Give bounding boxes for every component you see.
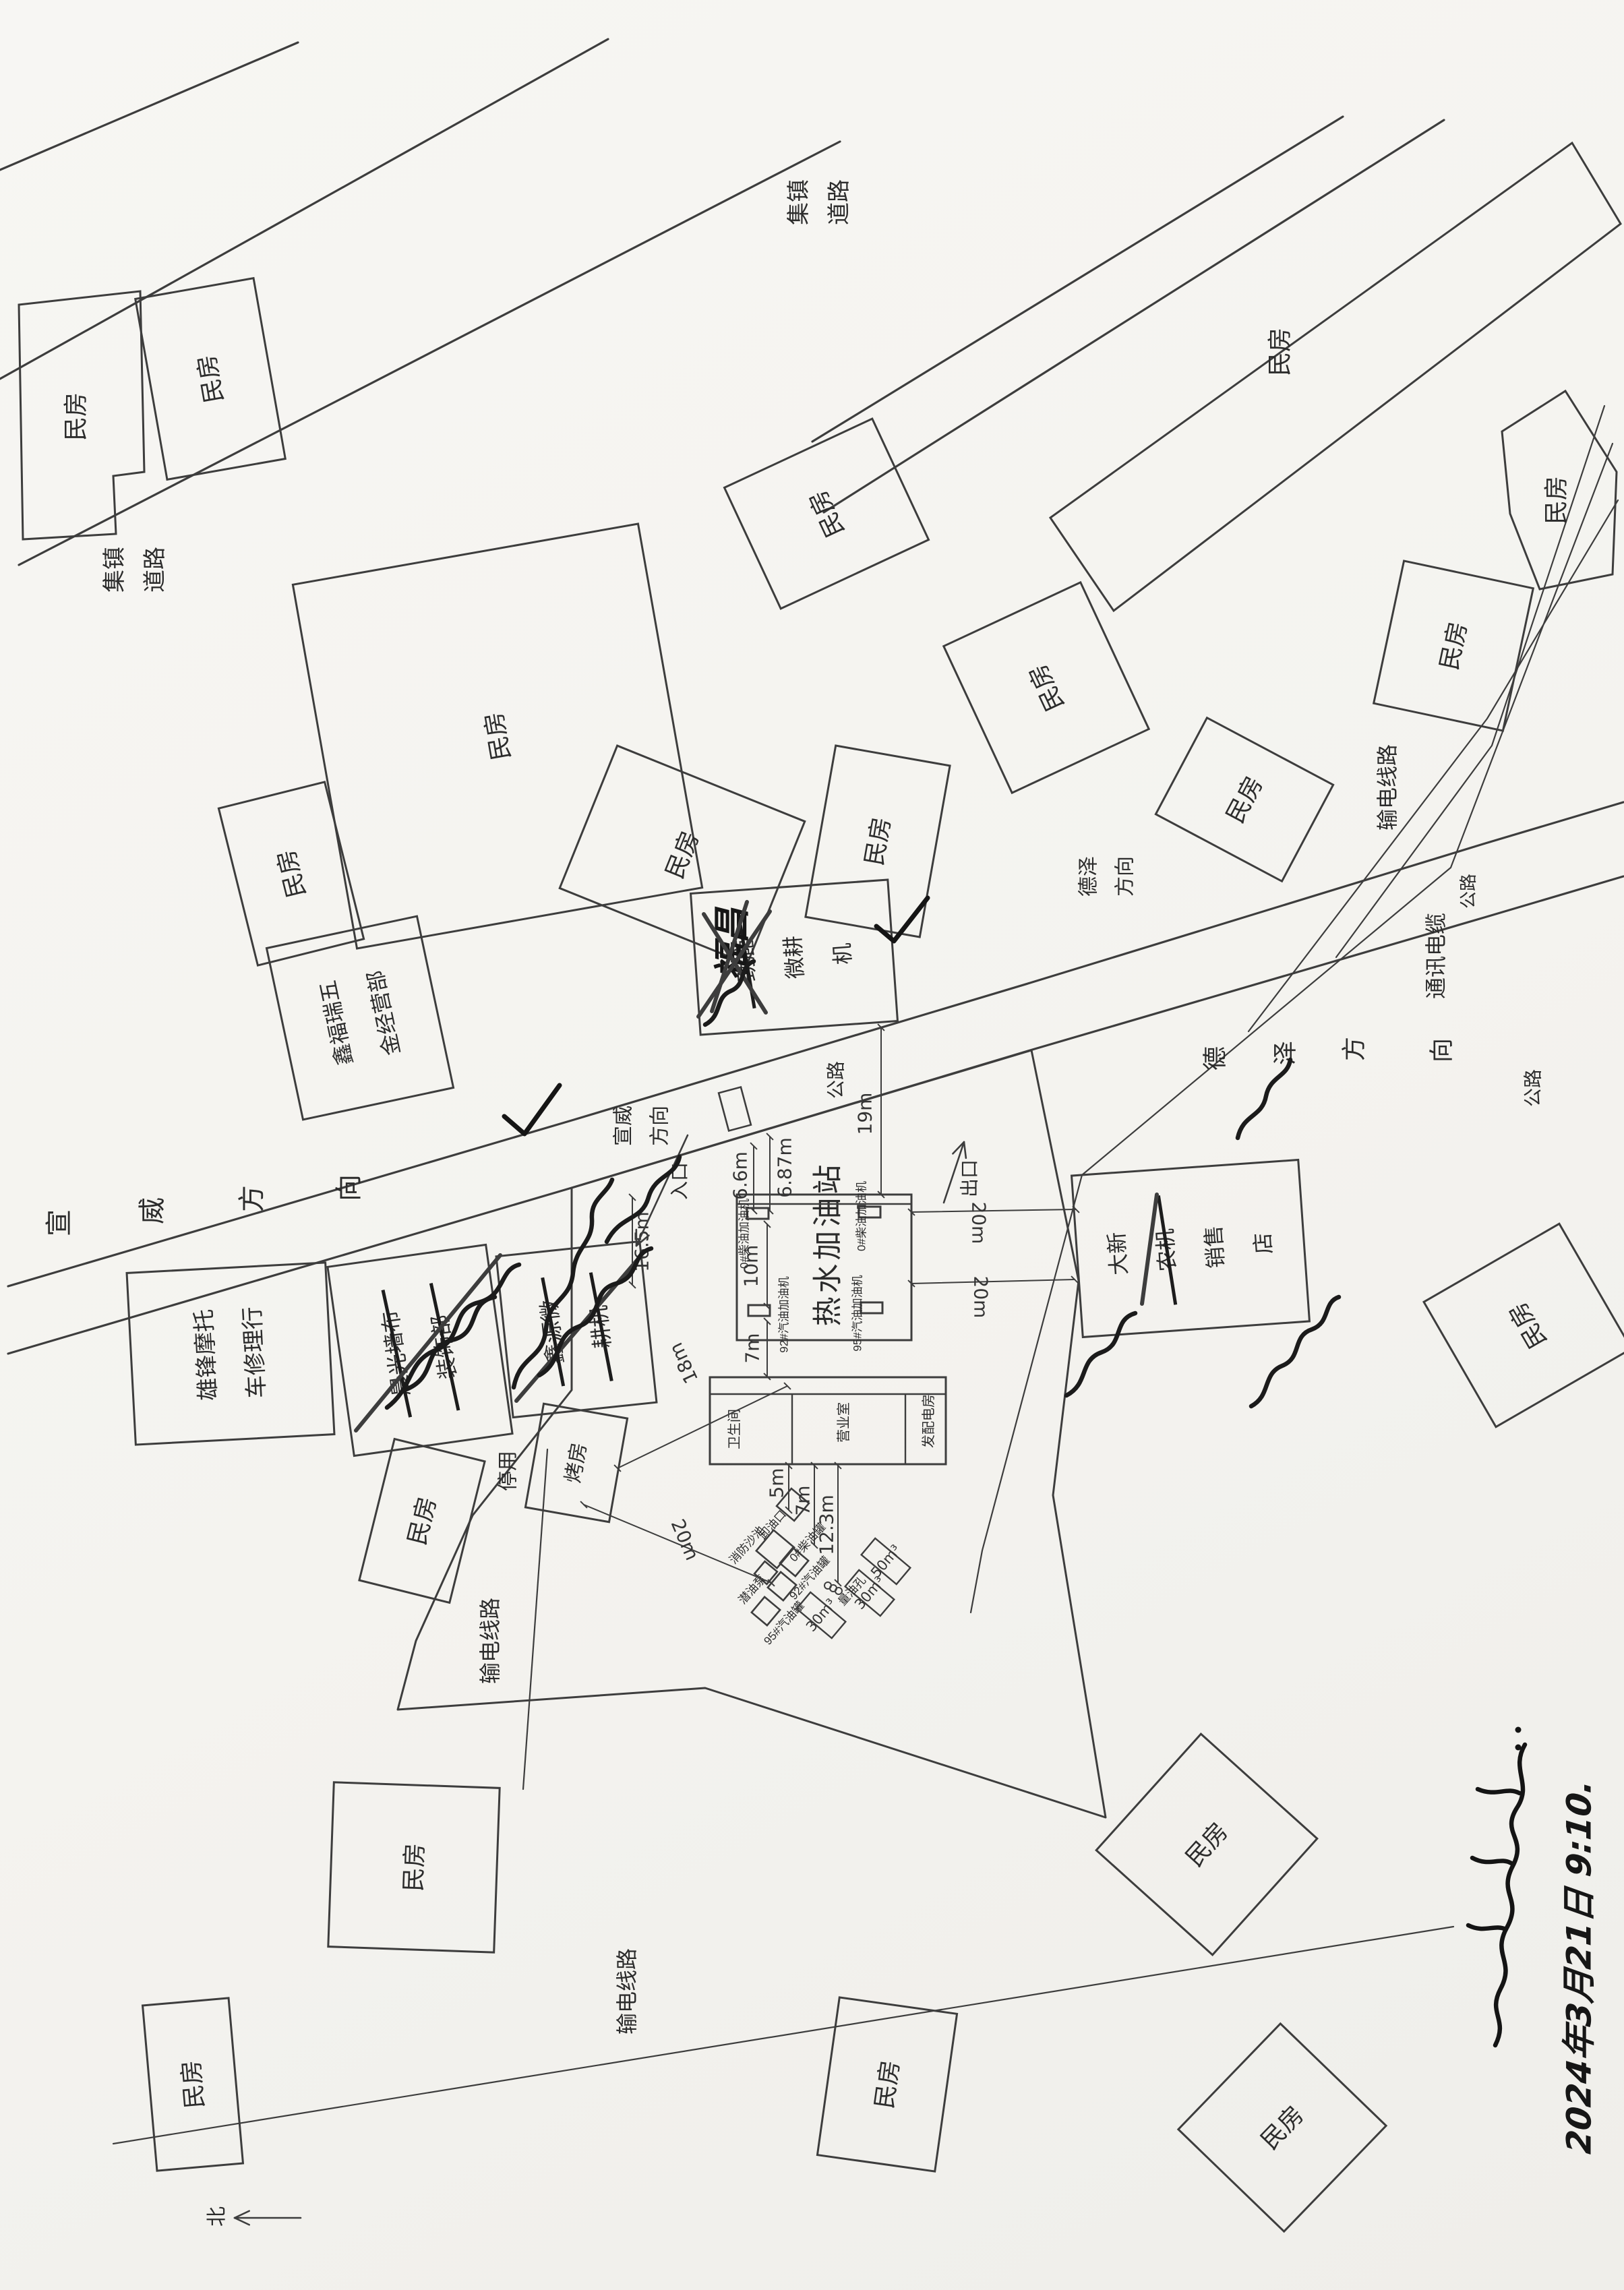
dimension-label: 10m (740, 1245, 762, 1288)
road-line (812, 117, 1343, 442)
house-box: 民房 (143, 1998, 243, 2171)
house-box: 民房 (806, 746, 950, 937)
house: 民房 (218, 782, 363, 965)
xuanwei-direction-small-line: 宣威 (613, 1106, 635, 1146)
house: 民房 (19, 291, 144, 539)
dimension-tick (784, 1383, 791, 1389)
deze-dir-char-3: 方 (1340, 1037, 1368, 1061)
signature-dot (1515, 1745, 1522, 1751)
fuel-dispenser-label: 92#汽油加油机 (778, 1276, 791, 1352)
shop-label-column: 大新 (1104, 1231, 1131, 1275)
house-box: 民房 (1178, 2024, 1386, 2231)
deze-dir-char-4: 向 (1428, 1038, 1455, 1062)
house: 民房 (806, 746, 950, 937)
house-label: 民房 (177, 2059, 208, 2109)
road-line (0, 42, 298, 170)
deze-dir-char-2: 泽 (1271, 1041, 1299, 1065)
dimension-label: 6.87m (774, 1137, 796, 1198)
shop-outline (266, 916, 453, 1120)
house-box: 民房 (944, 582, 1149, 793)
house-label: 民房 (1023, 660, 1069, 716)
power-line-label-3: 输电线路 (615, 1948, 639, 2035)
shop-outline (127, 1263, 334, 1445)
house: 民房 (817, 1997, 957, 2171)
scanned-site-plan-page: 热水加油站 2024年3月21日 9:10. 民房民房民房民房民房民房民房民房民… (0, 0, 1624, 2290)
dimension-line (618, 1386, 787, 1468)
house: 民房 (1374, 561, 1534, 731)
house-box: 民房 (293, 524, 702, 948)
hand-drawn-site-plan: 热水加油站 2024年3月21日 9:10. 民房民房民房民房民房民房民房民房民… (0, 0, 1624, 2290)
xuanwei-dir-char-2: 威 (138, 1197, 167, 1224)
xiongfeng-motorcycle-repair: 雄锋摩托车修理行 (127, 1263, 334, 1445)
town-road-label-2-line: 道路 (826, 179, 852, 225)
north-arrow-head (235, 2211, 249, 2218)
house-label: 民房 (860, 815, 896, 868)
house-label: 民房 (1435, 620, 1472, 673)
shop-label-column: 机 (830, 942, 855, 965)
house-box: 民房 (218, 782, 363, 965)
tank-outline (752, 1597, 780, 1625)
town-road-label-1-line: 道路 (142, 547, 168, 593)
house: 民房 (1424, 1224, 1624, 1426)
utility-line (113, 1927, 1453, 2144)
highway-label-1: 公路 (826, 1061, 847, 1099)
disused-label: 停用 (498, 1451, 520, 1491)
station-name: 热水加油站 (812, 1162, 845, 1327)
house-label: 民房 (1503, 1298, 1552, 1354)
house-label: 民房 (804, 486, 849, 542)
shop-label-column: 车修理行 (239, 1306, 270, 1399)
house-box: 民房 (328, 1782, 500, 1952)
fuel-dispenser (861, 1302, 882, 1313)
dimension-label: 7m (742, 1333, 764, 1363)
house-box: 民房 (1424, 1224, 1624, 1426)
shop-label-column: 店 (1251, 1232, 1276, 1255)
handwritten-signature (1468, 1745, 1525, 2045)
xuanwei-direction-small-line: 方向 (649, 1106, 671, 1146)
house-label: 民房 (62, 392, 90, 441)
shop-label-column: 鑫福瑞五 (315, 978, 357, 1068)
house-box: 民房 (1374, 561, 1534, 731)
dimension-label: 5m (766, 1468, 788, 1498)
shop-label-column: 微耕 (781, 935, 808, 980)
house: 民房 (1178, 2024, 1386, 2231)
signature-dot (1515, 1727, 1522, 1733)
tank-label: 潜油泵 (736, 1573, 769, 1607)
deze-direction-small-line: 德泽 (1078, 856, 1100, 897)
town-road-label-2-line: 集镇 (786, 179, 812, 225)
xinfurui-hardware: 鑫福瑞五金经营部 (266, 916, 453, 1120)
deze-direction-small-line: 方向 (1114, 856, 1137, 897)
house-label: 民房 (1221, 772, 1268, 828)
highway-label-3: 公路 (1523, 1069, 1544, 1107)
comm-cable-label: 通讯电缆 (1424, 913, 1448, 999)
house-label: 民房 (1180, 1817, 1234, 1872)
house-label: 民房 (1266, 328, 1294, 376)
station-building (710, 1377, 946, 1464)
exit-label: 出口 (959, 1159, 980, 1197)
house: 民房 (143, 1998, 243, 2171)
house-box: 民房 (1096, 1734, 1317, 1955)
kaofang-curing-barn: 烤房 (525, 1404, 627, 1522)
handwritten-date: 2024年3月21日 9:10. (1559, 1778, 1599, 2155)
hand-strike (356, 1255, 500, 1430)
town-road-label-1-line: 集镇 (102, 547, 127, 593)
room-label: 发配电房 (921, 1394, 936, 1448)
fuel-dispenser-label: 95#汽油加油机 (851, 1275, 864, 1351)
house-box: 民房 (724, 419, 928, 609)
gate-post (719, 1087, 751, 1131)
exit-arrow-head (964, 1142, 966, 1158)
handwritten-scribble (1066, 1313, 1135, 1395)
house: 民房 (1155, 718, 1333, 882)
room-label: 营业室 (836, 1402, 851, 1443)
shop-label-column: 销售 (1201, 1224, 1228, 1269)
house-box: 民房 (136, 278, 286, 480)
xuanwei-dir-char-4: 向 (334, 1174, 364, 1201)
handwritten-scribble (1238, 1060, 1290, 1138)
fuel-dispenser-label: 0#柴油加油机 (855, 1181, 868, 1251)
dimension-label: 19m (854, 1093, 876, 1135)
shop-label-column: 雄锋摩托 (191, 1308, 222, 1402)
deze-dir-char-1: 德 (1201, 1046, 1229, 1071)
house-label: 民房 (480, 710, 516, 762)
house-label: 民房 (402, 1494, 441, 1548)
tank (752, 1597, 780, 1625)
generated-drawing: 民房民房民房民房民房民房民房民房民房民房民房民房民房民房民房民房民房民房民房鑫福… (0, 39, 1624, 2231)
handwritten-scribble (1251, 1297, 1339, 1406)
house: 民房 (944, 582, 1149, 793)
highway-label-2: 公路 (1458, 874, 1478, 909)
dimension-line (911, 1279, 1075, 1284)
daxin-farm-machine-store: 大新农机销售店 (1072, 1160, 1310, 1337)
xuanwei-dir-char-1: 宣 (44, 1209, 74, 1236)
dimension-label: 20m (970, 1276, 992, 1319)
house: 民房 (293, 524, 702, 948)
house-label: 民房 (399, 1842, 428, 1892)
house: 民房 (359, 1439, 485, 1603)
xuanwei-dir-char-3: 方 (237, 1185, 267, 1212)
house-label: 民房 (661, 827, 704, 882)
road-line (824, 120, 1444, 512)
hand-strike (516, 1258, 639, 1401)
dimension-label: 20m (968, 1202, 990, 1244)
utility-line (971, 444, 1613, 1613)
house-label: 民房 (1542, 476, 1570, 524)
house-label: 民房 (1255, 2101, 1309, 2155)
shop-label-column: 金经营部 (363, 968, 404, 1058)
house: 民房 (1096, 1734, 1317, 1955)
north-arrow-head (235, 2218, 249, 2225)
dimension-tick (580, 1501, 587, 1508)
house: 民房 (136, 278, 286, 480)
dimension-label: 12.3m (816, 1495, 838, 1555)
house-box: 民房 (817, 1997, 957, 2171)
road-line (0, 39, 608, 379)
dimension-label: 20m (667, 1516, 704, 1564)
house-label: 民房 (870, 2058, 905, 2110)
dimension-label: 6.6m (729, 1151, 752, 1200)
dimension-label: 7m (792, 1485, 814, 1515)
gate-post-outline (719, 1087, 751, 1131)
house-box: 民房 (1155, 718, 1333, 882)
north-label: 北 (206, 2206, 229, 2227)
house-outline (1050, 143, 1621, 611)
house-label: 民房 (193, 353, 229, 405)
house: 民房 (328, 1782, 500, 1952)
power-line-label-1: 输电线路 (1375, 744, 1400, 831)
shop-label-column: 烤房 (562, 1441, 591, 1485)
house: 民房 (724, 419, 928, 609)
dimension-line (911, 1209, 1076, 1212)
power-line-label-2: 输电线路 (478, 1598, 502, 1684)
dimension-label: 18m (665, 1339, 702, 1387)
house-label: 民房 (272, 847, 310, 901)
house-box: 民房 (359, 1439, 485, 1603)
house: 民房 (1050, 143, 1621, 611)
